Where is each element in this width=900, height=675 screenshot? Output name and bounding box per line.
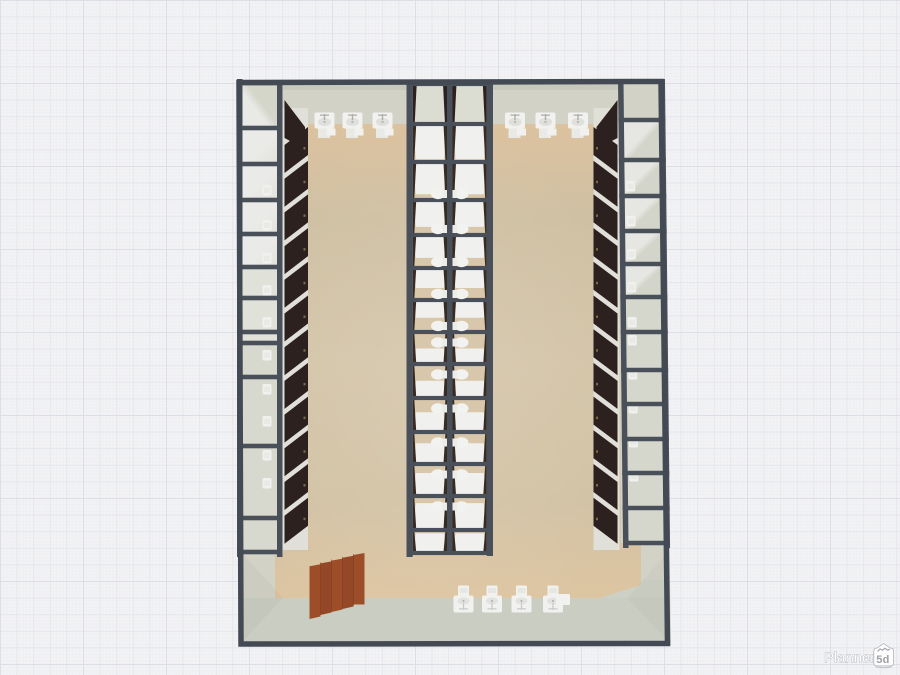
svg-text:5d: 5d	[876, 654, 889, 666]
svg-text:Planner: Planner	[824, 650, 875, 667]
